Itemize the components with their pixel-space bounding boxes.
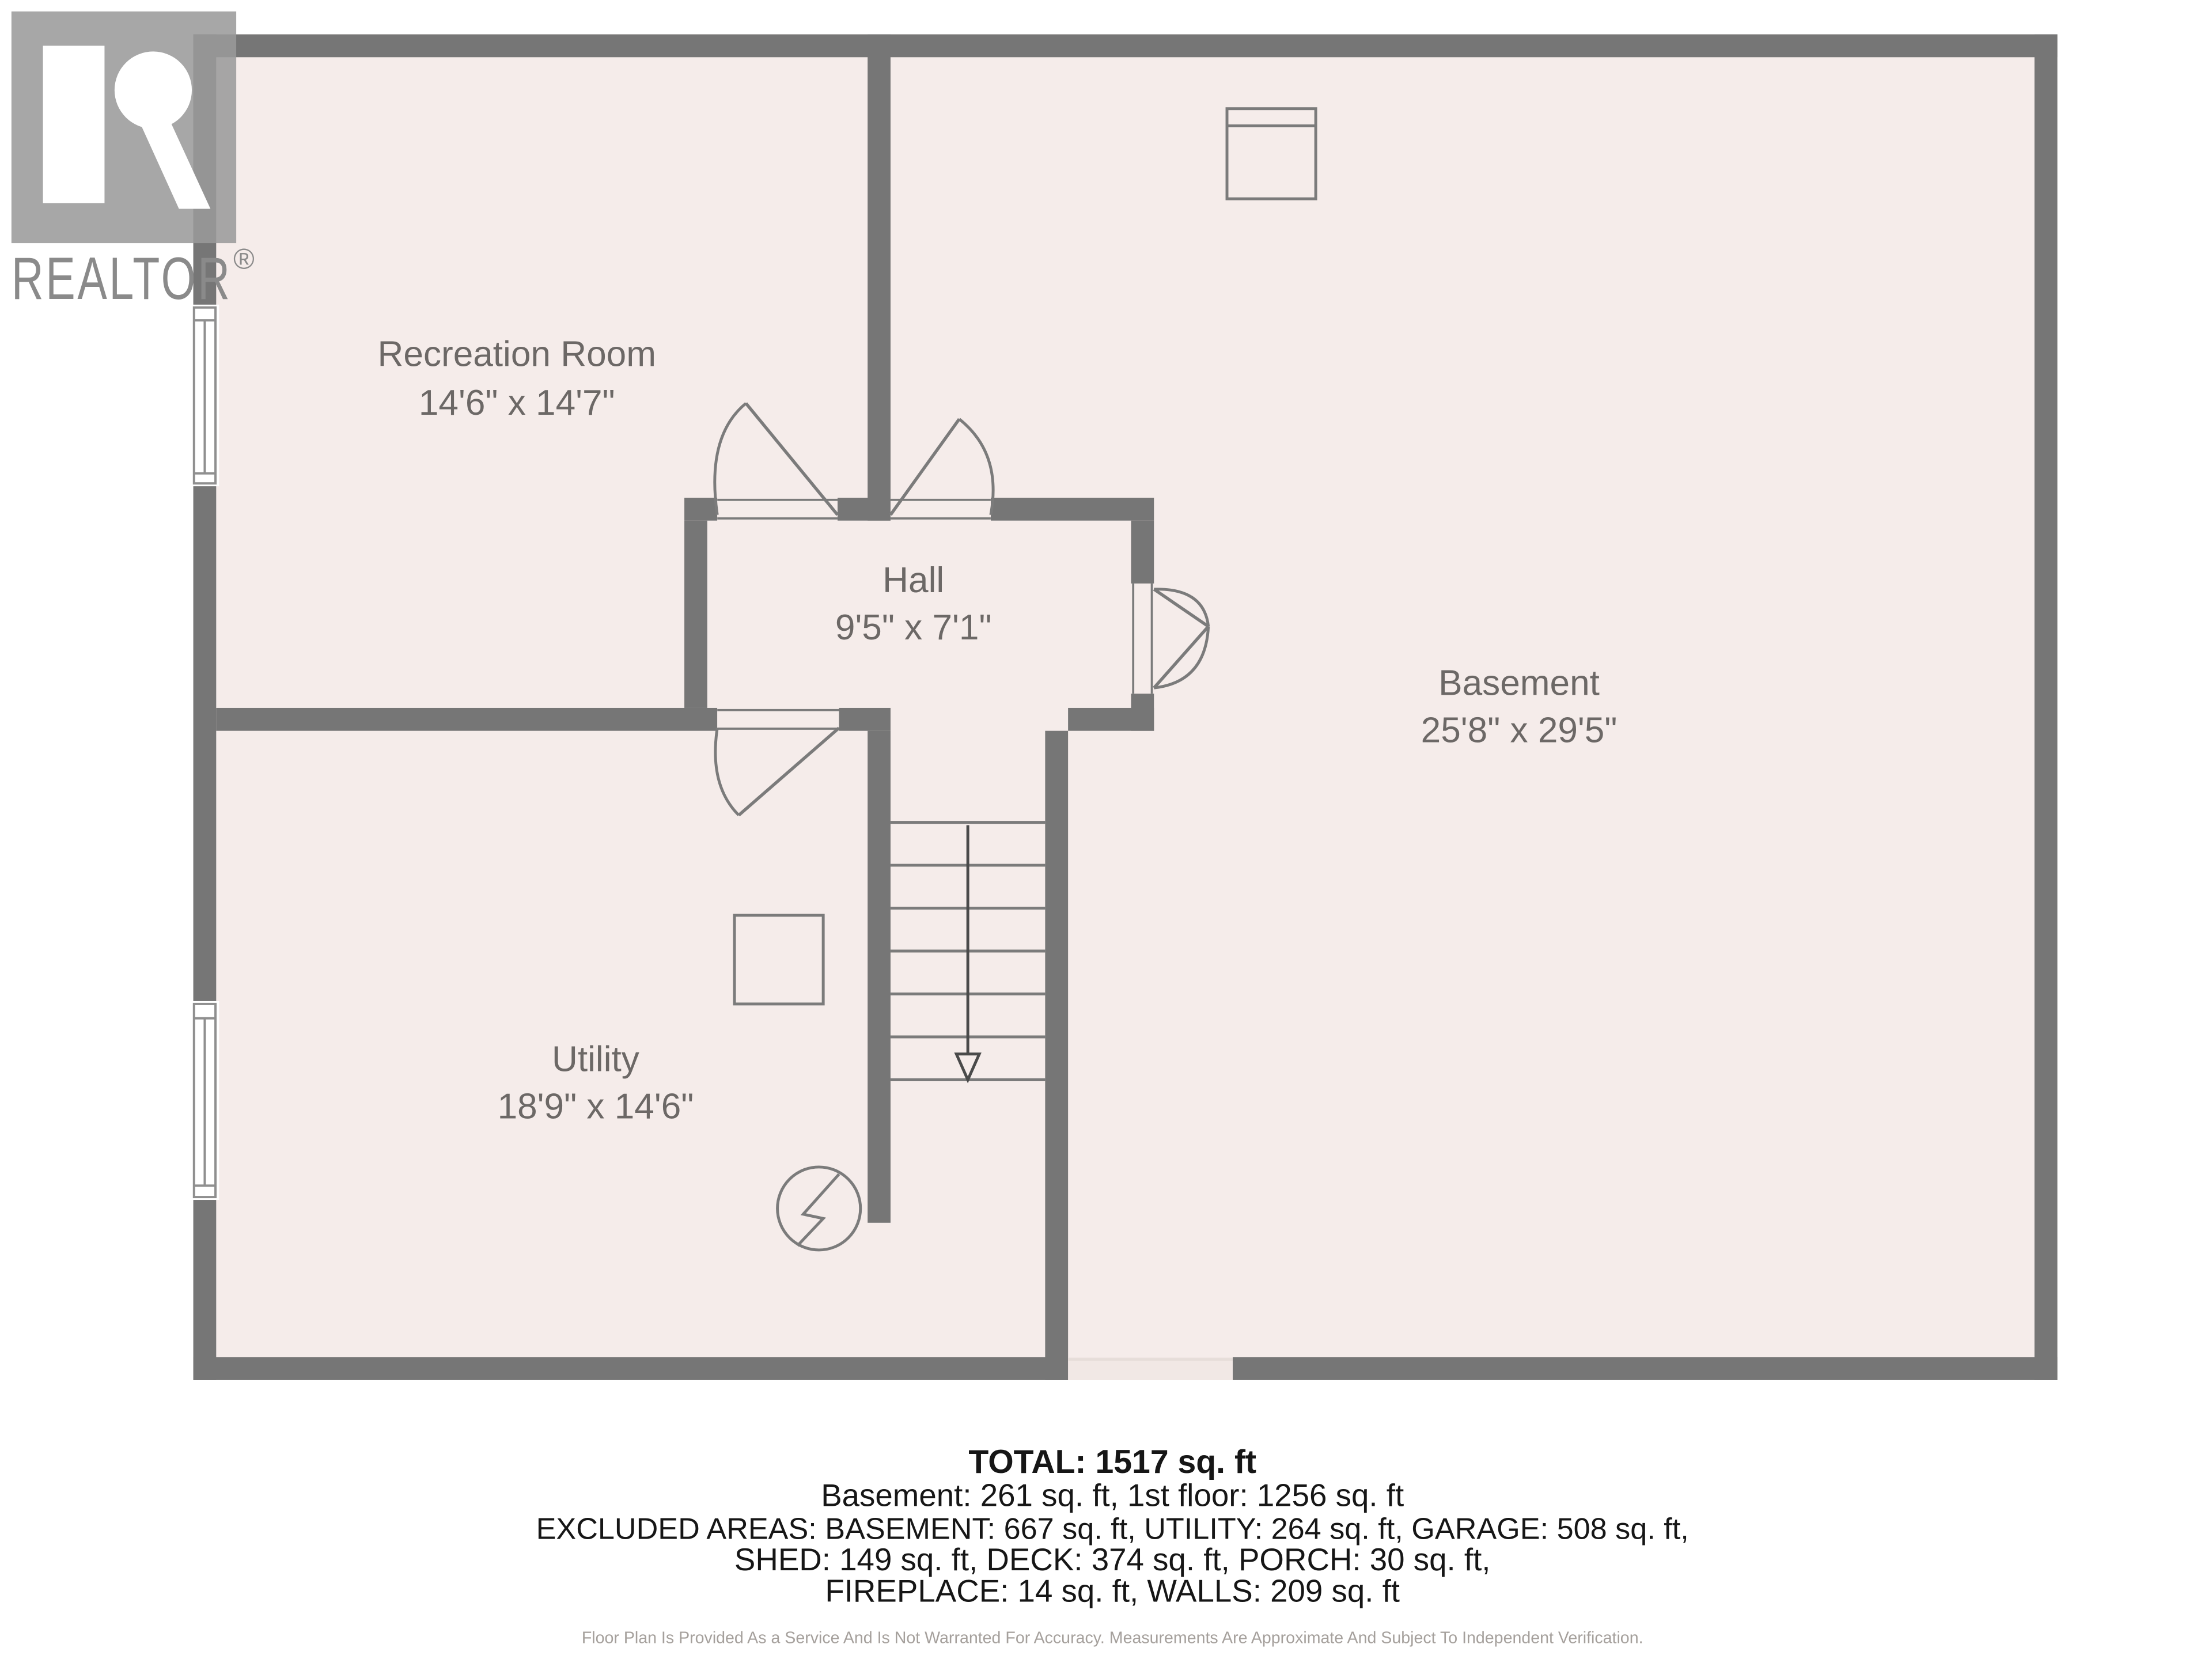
registered-mark-icon: ® bbox=[233, 243, 255, 275]
wall-outer-top bbox=[194, 35, 2058, 58]
wall-outer-bottom-left bbox=[194, 1357, 1069, 1380]
wall-hall-bottom-right bbox=[1068, 708, 1154, 731]
room-label-hall-name: Hall bbox=[882, 560, 944, 600]
wall-recroom-utility-divider bbox=[216, 708, 717, 731]
bottom-wall-opening bbox=[1068, 1357, 1233, 1380]
realtor-logo-text: REALTOR bbox=[12, 245, 232, 312]
area-summary: TOTAL: 1517 sq. ft Basement: 261 sq. ft,… bbox=[536, 1444, 1689, 1647]
wall-hall-left bbox=[684, 521, 707, 708]
summary-floors: Basement: 261 sq. ft, 1st floor: 1256 sq… bbox=[821, 1478, 1404, 1513]
summary-excluded-line1: EXCLUDED AREAS: BASEMENT: 667 sq. ft, UT… bbox=[536, 1512, 1689, 1546]
wall-hall-right-upper bbox=[1131, 521, 1154, 584]
realtor-logo: REALTOR ® bbox=[12, 12, 255, 312]
wall-recroom-basement-divider bbox=[868, 35, 891, 521]
wall-hall-bottom-mid bbox=[839, 708, 890, 731]
room-label-recreation-dims: 14'6" x 14'7" bbox=[419, 383, 615, 423]
floor-plan-svg: Recreation Room 14'6" x 14'7" Hall 9'5" … bbox=[0, 0, 2212, 1659]
room-label-basement-dims: 25'8" x 29'5" bbox=[1421, 711, 1618, 751]
summary-total: TOTAL: 1517 sq. ft bbox=[968, 1444, 1256, 1480]
wall-hall-top-right bbox=[991, 498, 1154, 521]
room-label-basement-name: Basement bbox=[1438, 664, 1600, 703]
wall-stairs-left bbox=[868, 731, 891, 1223]
floor-plan-page: Recreation Room 14'6" x 14'7" Hall 9'5" … bbox=[0, 0, 2212, 1659]
wall-hall-top-mid bbox=[838, 498, 891, 521]
summary-excluded-line2: SHED: 149 sq. ft, DECK: 374 sq. ft, PORC… bbox=[734, 1542, 1491, 1577]
room-label-utility-dims: 18'9" x 14'6" bbox=[498, 1087, 694, 1127]
wall-hall-top-left-stub bbox=[684, 498, 717, 521]
room-label-recreation-name: Recreation Room bbox=[378, 335, 656, 374]
room-label-utility-name: Utility bbox=[552, 1040, 639, 1080]
window-recreation-room bbox=[191, 305, 219, 486]
disclaimer-text: Floor Plan Is Provided As a Service And … bbox=[582, 1629, 1643, 1647]
wall-stairs-right bbox=[1045, 731, 1068, 1380]
summary-excluded-line3: FIREPLACE: 14 sq. ft, WALLS: 209 sq. ft bbox=[825, 1574, 1400, 1609]
realtor-logo-r-stem bbox=[43, 46, 105, 203]
room-label-hall-dims: 9'5" x 7'1" bbox=[835, 608, 992, 647]
wall-outer-bottom-right bbox=[1233, 1357, 2058, 1380]
floor-area bbox=[194, 35, 2058, 1380]
window-utility bbox=[191, 1001, 219, 1200]
wall-outer-right bbox=[2035, 35, 2058, 1380]
